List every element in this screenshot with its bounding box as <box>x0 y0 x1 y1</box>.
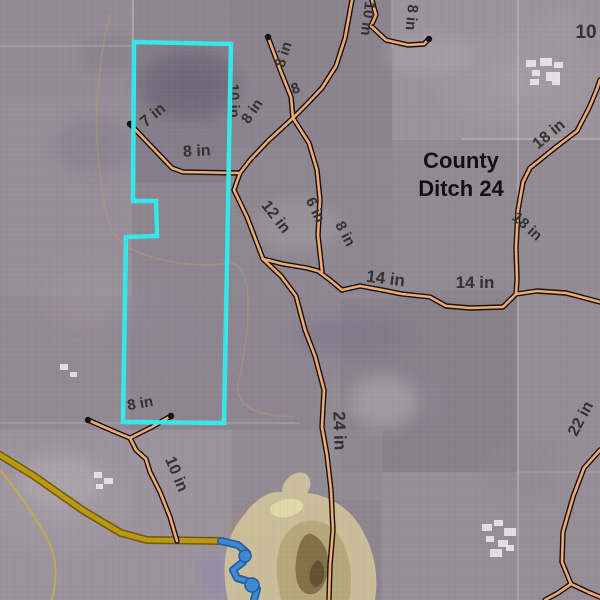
terrain-mottle <box>55 117 135 173</box>
pipe-size-label: 24 in <box>329 411 349 450</box>
terrain-mottle <box>349 376 417 428</box>
farmstead-building <box>552 80 560 85</box>
pipe-size-label: 8 in <box>402 4 421 31</box>
farmstead-building <box>554 62 563 68</box>
stream-pool <box>239 550 251 562</box>
tile-end-cap <box>85 417 91 423</box>
farmstead-building <box>546 72 560 81</box>
terrain-mottle <box>482 440 558 496</box>
farmstead-building <box>60 364 68 370</box>
farmstead-building <box>482 524 492 531</box>
tile-end-cap <box>426 36 432 42</box>
farmstead-building <box>530 79 539 85</box>
farmstead-building <box>104 478 113 484</box>
farmstead-building <box>70 372 77 377</box>
farmstead-building <box>94 472 102 478</box>
drainage-tile-map: 10 in8 in8 in810 in8 in8 in7 in1018 in18… <box>0 0 600 600</box>
farmstead-building <box>532 70 540 76</box>
terrain-mottle <box>80 37 140 73</box>
farmstead-building <box>526 60 536 67</box>
ditch-title-line: County <box>423 148 500 173</box>
ditch-title-line: Ditch 24 <box>418 176 504 201</box>
farmstead-building <box>486 536 494 542</box>
farmstead-building <box>506 545 514 551</box>
tile-end-cap <box>265 34 271 40</box>
tile-end-cap <box>168 413 174 419</box>
field-patch <box>518 140 600 290</box>
farmstead-building <box>490 549 502 557</box>
farmstead-building <box>96 484 103 489</box>
field-patch <box>0 296 130 430</box>
farmstead-building <box>504 528 516 536</box>
map-canvas: 10 in8 in8 in810 in8 in8 in7 in1018 in18… <box>0 0 600 600</box>
pipe-size-label: 8 in <box>183 142 211 160</box>
stream-pool <box>245 578 259 592</box>
farmstead-building <box>540 58 552 66</box>
farmstead-building <box>494 520 503 526</box>
field-patch <box>0 430 232 600</box>
pipe-size-label: 14 in <box>456 273 495 292</box>
pipe-size-label: 10 <box>575 22 596 43</box>
